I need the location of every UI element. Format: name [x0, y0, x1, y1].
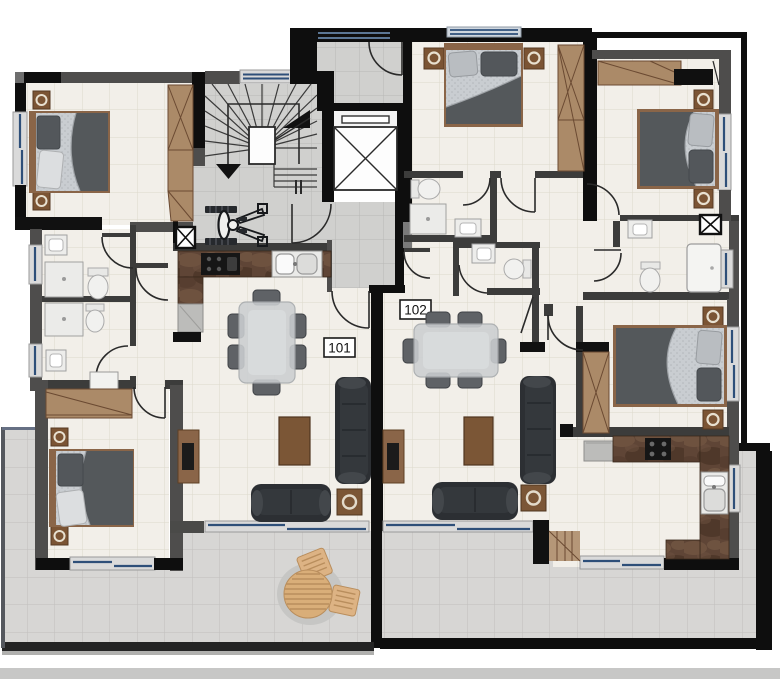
svg-text:101: 101 — [328, 341, 351, 356]
svg-text:102: 102 — [404, 303, 427, 318]
